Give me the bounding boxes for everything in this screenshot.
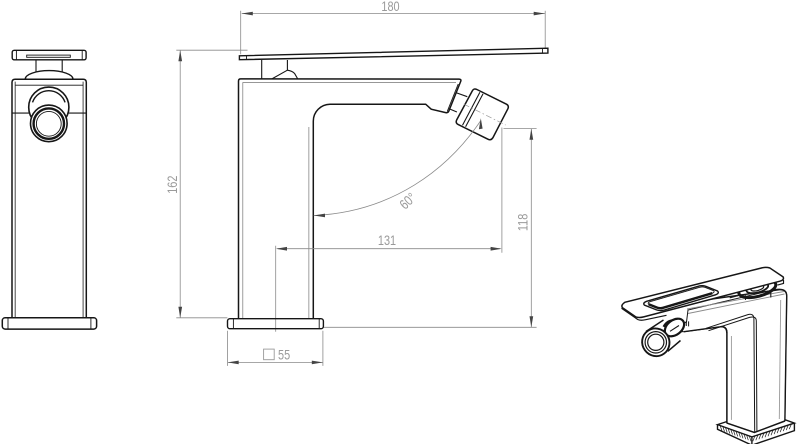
svg-text:118: 118 <box>515 214 531 231</box>
svg-text:131: 131 <box>378 233 396 249</box>
svg-text:55: 55 <box>278 347 290 363</box>
svg-text:162: 162 <box>165 176 181 194</box>
svg-text:180: 180 <box>381 0 399 14</box>
